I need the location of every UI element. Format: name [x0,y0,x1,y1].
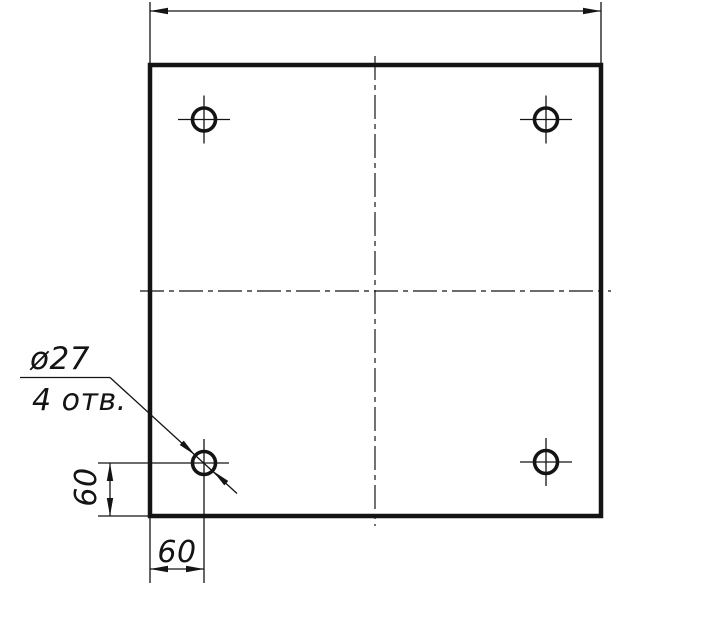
hole-count-label: 4 отв. [32,383,127,418]
leader-arrowhead-upper [180,441,195,455]
hole-top-left [178,96,230,144]
drawing-canvas: ø27 4 отв. 60 60 [0,0,713,631]
arrowhead-down [107,498,113,516]
arrowhead-right [583,8,601,14]
overall-width-dimension [150,2,601,63]
hole-diameter-label: ø27 [29,341,90,377]
vertical-offset-value: 60 [69,467,104,506]
vertical-offset-dimension: 60 [69,463,150,516]
hole-top-right [520,96,572,144]
plate-drawing: ø27 4 отв. 60 60 [0,0,713,631]
arrowhead-up [107,463,113,481]
leader-arrowhead-lower [213,471,228,485]
horizontal-offset-value: 60 [157,535,196,570]
arrowhead-left [150,8,168,14]
hole-bottom-right [520,438,572,486]
horizontal-offset-dimension: 60 [150,518,204,583]
